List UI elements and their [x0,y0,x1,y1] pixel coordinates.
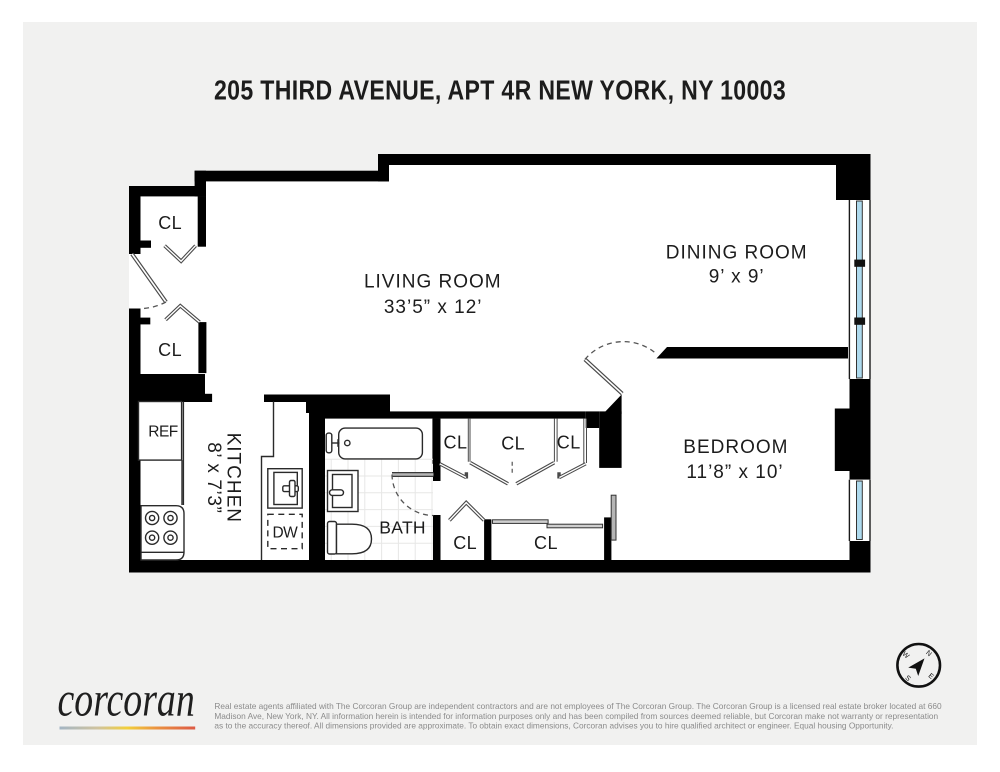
svg-text:corcoran: corcoran [58,673,195,727]
svg-text:8’ x 7’3”: 8’ x 7’3” [203,442,224,513]
svg-text:CL: CL [534,533,558,553]
svg-text:CL: CL [443,433,467,453]
svg-text:33’5” x 12’: 33’5” x 12’ [384,297,483,318]
svg-text:11’8” x 10’: 11’8” x 10’ [686,462,783,483]
svg-text:BEDROOM: BEDROOM [683,437,788,458]
svg-text:Madison Ave, New York, NY. All: Madison Ave, New York, NY. All informati… [214,711,938,721]
svg-text:as to the accuracy thereof. Al: as to the accuracy thereof. All dimensio… [214,721,893,731]
svg-text:LIVING ROOM: LIVING ROOM [364,271,502,292]
svg-text:REF: REF [148,424,178,441]
svg-text:Real estate agents affiliated: Real estate agents affiliated with The C… [214,701,942,711]
svg-text:CL: CL [557,433,581,453]
svg-text:CL: CL [453,533,477,553]
svg-text:BATH: BATH [379,518,426,538]
svg-text:9’ x 9’: 9’ x 9’ [709,267,765,288]
svg-text:DW: DW [272,524,298,541]
svg-text:205 THIRD AVENUE, APT 4R NEW Y: 205 THIRD AVENUE, APT 4R NEW YORK, NY 10… [214,76,786,106]
svg-text:CL: CL [501,434,525,454]
svg-text:DINING ROOM: DINING ROOM [666,242,808,263]
svg-text:KITCHEN: KITCHEN [222,433,243,523]
svg-text:CL: CL [158,213,182,233]
svg-text:CL: CL [158,340,182,360]
